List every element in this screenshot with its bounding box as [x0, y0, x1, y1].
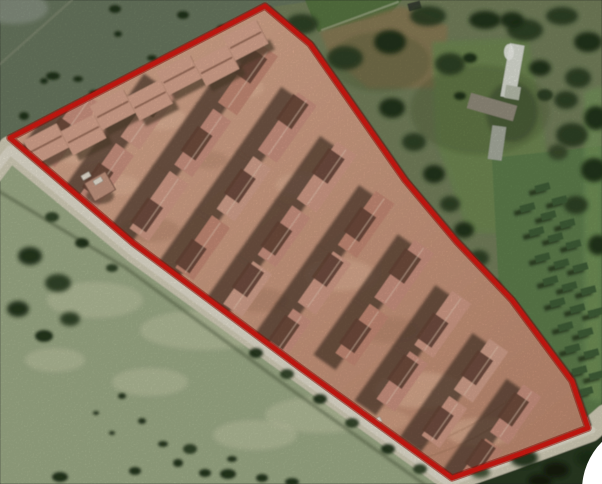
annotation-layer: [0, 0, 602, 484]
satellite-map-image: [0, 0, 602, 484]
screenshot-root: [0, 0, 602, 484]
photo-grain: [0, 0, 602, 484]
